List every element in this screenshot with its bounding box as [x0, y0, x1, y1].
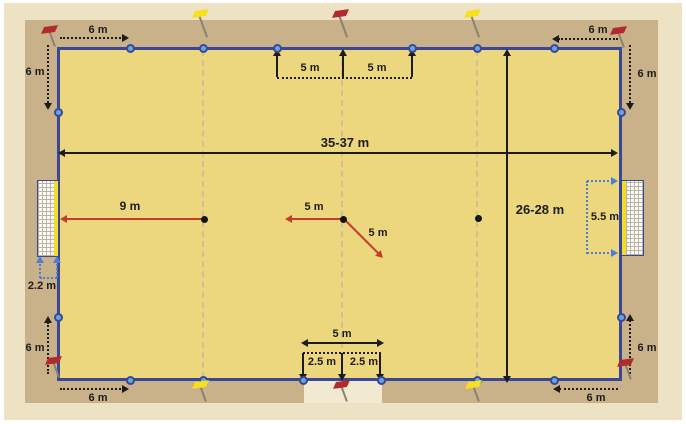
arrowhead	[611, 149, 618, 157]
arrowhead	[553, 385, 560, 393]
corner-flag-icon	[42, 26, 62, 52]
quarter-flag-icon	[465, 10, 485, 36]
dim-line	[40, 277, 57, 279]
dim-line	[276, 56, 278, 77]
flag-pole	[338, 14, 348, 37]
halfway-flag-icon	[334, 381, 354, 407]
arrowhead	[552, 35, 559, 43]
left-goal-frame	[54, 181, 58, 256]
label-corner-bottom-left-v: 6 m	[22, 342, 48, 354]
arrowhead	[122, 385, 129, 393]
dim-line	[277, 77, 412, 79]
dim-line	[411, 56, 413, 77]
flag-head	[465, 380, 482, 389]
dim-line	[629, 45, 631, 103]
dim-line	[559, 388, 618, 390]
left-quarter-line	[202, 50, 204, 378]
label-field-length: 35-37 m	[300, 136, 390, 150]
arrowhead	[626, 314, 634, 321]
boundary-marker	[299, 376, 308, 385]
subzone-5m-line	[305, 342, 379, 344]
corner-flag-icon	[46, 357, 66, 383]
arrowhead	[122, 34, 129, 42]
label-corner-bottom-right-h: 6 m	[574, 392, 618, 404]
boundary-marker	[54, 313, 63, 322]
dim-line	[587, 180, 613, 182]
quarter-flag-icon	[193, 381, 213, 407]
field-diagram: 6 m 6 m 6 m 6 m 5 m 5 m 35-37 m 26-28 m …	[0, 0, 686, 424]
boundary-marker	[408, 44, 417, 53]
penalty-9m-line	[64, 218, 204, 220]
label-top-5m-left: 5 m	[288, 62, 332, 74]
quarter-flag-icon	[193, 10, 213, 36]
arrowhead	[626, 103, 634, 110]
flag-head	[464, 9, 481, 18]
field-length-line	[62, 152, 612, 154]
corner-flag-icon	[611, 27, 631, 53]
quarter-flag-icon	[466, 381, 486, 407]
center-5m-line	[289, 218, 343, 220]
label-top-5m-right: 5 m	[355, 62, 399, 74]
arrowhead	[339, 49, 347, 56]
label-corner-top-left-h: 6 m	[76, 24, 120, 36]
arrowhead	[44, 316, 52, 323]
right-quarter-line	[476, 50, 478, 378]
flag-head	[41, 25, 58, 34]
flag-head	[617, 358, 634, 367]
boundary-marker	[199, 44, 208, 53]
flag-head	[45, 356, 62, 365]
arrowhead	[503, 376, 511, 383]
label-corner-top-left-v: 6 m	[22, 66, 48, 78]
corner-flag-icon	[618, 359, 638, 385]
arrowhead	[503, 49, 511, 56]
arrowhead	[377, 339, 384, 347]
boundary-marker	[54, 108, 63, 117]
penalty-spot	[340, 216, 347, 223]
arrowhead	[36, 256, 44, 263]
label-corner-top-right-v: 6 m	[632, 68, 662, 80]
flag-head	[332, 9, 349, 18]
boundary-marker	[126, 44, 135, 53]
arrowhead	[60, 215, 67, 223]
label-goal-depth: 2.2 m	[22, 280, 62, 292]
penalty-spot	[201, 216, 208, 223]
arrowhead	[53, 256, 61, 263]
arrowhead	[285, 215, 292, 223]
boundary-marker	[617, 108, 626, 117]
label-subzone-5m: 5 m	[324, 328, 360, 340]
dim-line	[587, 252, 613, 254]
dim-line	[60, 388, 124, 390]
dim-line	[342, 56, 344, 77]
flag-pole	[198, 14, 208, 37]
arrowhead	[611, 177, 618, 185]
label-field-width: 26-28 m	[508, 203, 572, 217]
flag-head	[192, 9, 209, 18]
label-subzone-left-half: 2.5 m	[303, 356, 341, 368]
boundary-marker	[377, 376, 386, 385]
dim-line	[341, 353, 343, 374]
label-penalty-9m: 9 m	[108, 200, 152, 212]
dim-line	[558, 38, 618, 40]
halfway-flag-icon	[333, 10, 353, 36]
boundary-marker	[550, 44, 559, 53]
label-corner-bottom-right-v: 6 m	[632, 342, 662, 354]
label-corner-bottom-left-h: 6 m	[76, 392, 120, 404]
label-subzone-right-half: 2.5 m	[345, 356, 383, 368]
left-goal-net	[37, 180, 59, 257]
label-goal-width: 5.5 m	[585, 211, 625, 223]
arrowhead	[611, 249, 618, 257]
boundary-marker	[617, 313, 626, 322]
label-center-5m-diagonal: 5 m	[358, 227, 398, 239]
boundary-marker	[473, 44, 482, 53]
boundary-marker	[273, 44, 282, 53]
arrowhead	[301, 339, 308, 347]
flag-pole	[470, 14, 480, 37]
arrowhead	[44, 103, 52, 110]
label-center-5m: 5 m	[294, 201, 334, 213]
boundary-marker	[126, 376, 135, 385]
flag-head	[610, 26, 627, 35]
flag-head	[333, 380, 350, 389]
boundary-marker	[550, 376, 559, 385]
penalty-spot	[475, 215, 482, 222]
arrowhead	[58, 149, 65, 157]
flag-head	[192, 380, 209, 389]
dim-line	[60, 37, 124, 39]
